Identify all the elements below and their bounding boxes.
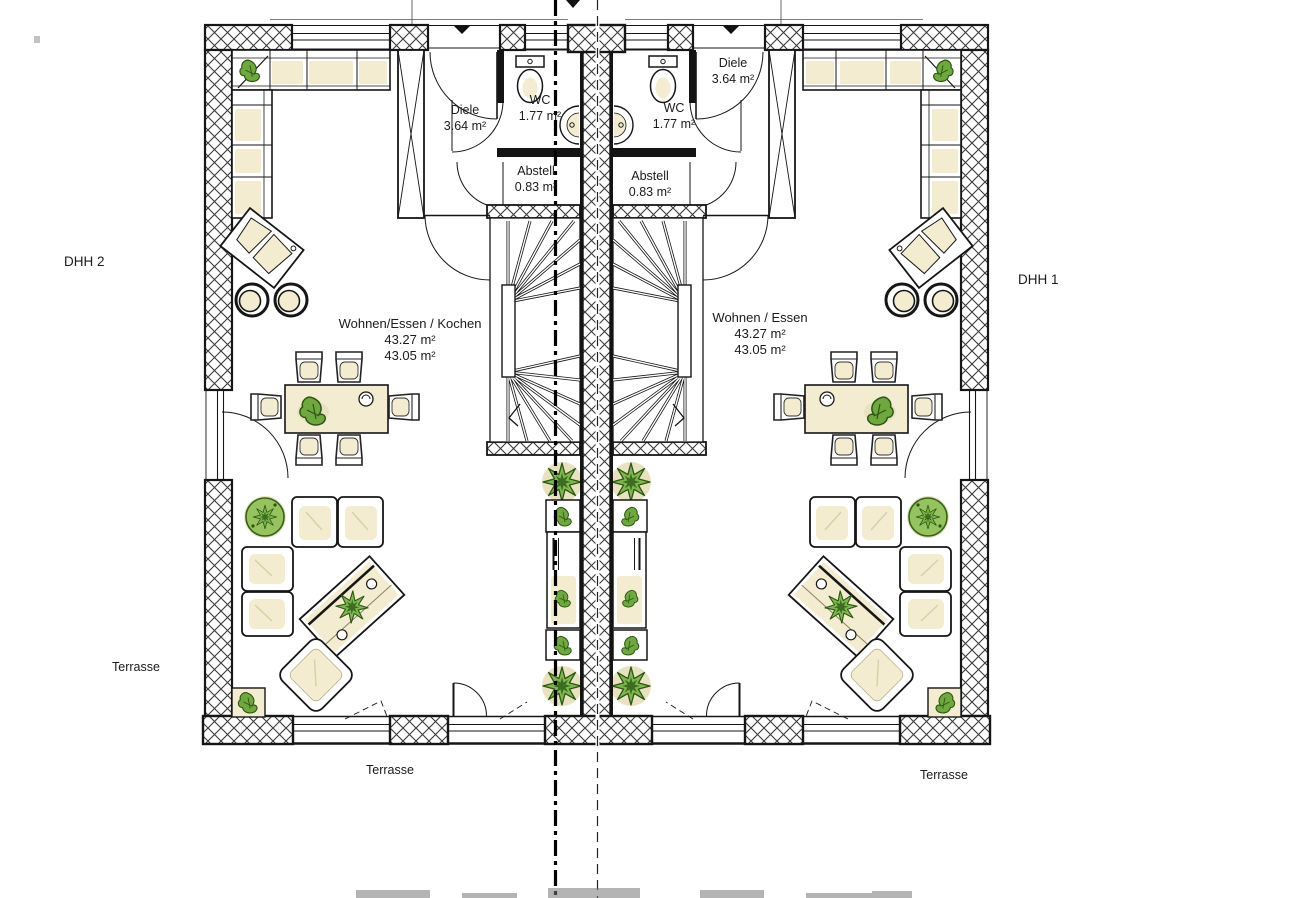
room-label-abstell-right: Abstell 0.83 m² [629, 168, 671, 200]
room-label-living-right: Wohnen / Essen 43.27 m² 43.05 m² [712, 310, 807, 358]
scan-speck [34, 36, 40, 43]
room-label-abstell-left: Abstell 0.83 m² [515, 163, 557, 195]
terrace-label-bottom-left: Terrasse [366, 763, 414, 777]
bottom-crop-artifacts [356, 888, 912, 898]
floor-plan-drawing [0, 0, 1290, 898]
room-label-living-left: Wohnen/Essen / Kochen 43.27 m² 43.05 m² [339, 316, 482, 364]
room-label-diele-right: Diele 3.64 m² [712, 55, 754, 87]
room-label-wc-left: WC 1.77 m² [519, 92, 561, 124]
house-id-dhh1: DHH 1 [1018, 272, 1059, 287]
house-id-dhh2: DHH 2 [64, 254, 105, 269]
terrace-label-bottom-right: Terrasse [920, 768, 968, 782]
floor-plan: DHH 2 DHH 1 Terrasse Terrasse Terrasse D… [0, 0, 1290, 898]
room-label-wc-right: WC 1.77 m² [653, 100, 695, 132]
room-label-diele-left: Diele 3.64 m² [444, 102, 486, 134]
terrace-label-left: Terrasse [112, 660, 160, 674]
